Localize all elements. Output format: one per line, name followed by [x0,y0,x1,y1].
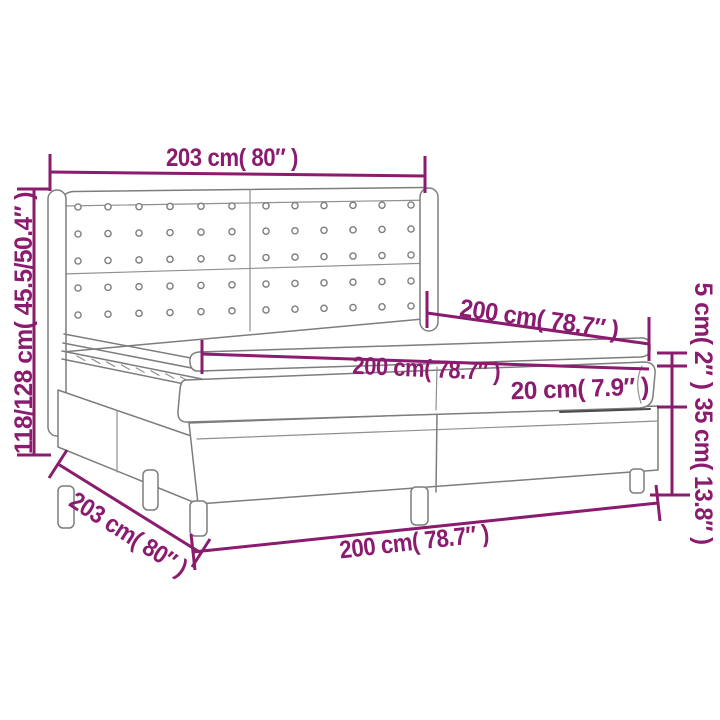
dim-base-width-front-tick-left [191,534,195,570]
headboard-button [408,252,414,258]
slat-hatch [92,359,100,364]
headboard-button [292,203,298,209]
headboard-button [229,229,235,235]
side-rail-line-3 [62,351,202,379]
headboard-button [229,282,235,288]
headboard-button [105,311,111,317]
headboard-button [321,280,327,286]
headboard-button [167,256,173,262]
headboard-button [229,255,235,261]
headboard-button [263,281,269,287]
headboard-button [75,258,81,264]
headboard-button [75,312,81,318]
headboard-button [321,305,327,311]
headboard-button [136,204,142,210]
slat-hatch [121,365,129,370]
slat-hatch-marks [77,356,189,381]
box-center-seam [436,413,437,492]
headboard-button [321,253,327,259]
headboard-right-wing [420,188,438,331]
headboard-button [198,229,204,235]
headboard-button [198,203,204,209]
headboard-button [350,227,356,233]
headboard-button [408,278,414,284]
headboard-button [408,202,414,208]
headboard-button [136,230,142,236]
headboard-button [75,231,81,237]
headboard-button [408,303,414,309]
dim-mattress-height: 20 cm( 7.9″ ) [510,373,649,406]
headboard-button [321,202,327,208]
headboard-button [379,226,385,232]
headboard-button [350,279,356,285]
headboard-face [62,187,434,352]
headboard-button [350,202,356,208]
headboard-button [292,306,298,312]
headboard-button [167,283,173,289]
headboard-button [75,285,81,291]
headboard-button [105,284,111,290]
headboard-button [167,230,173,236]
dim-base-width-front-label: 200 cm( 78.7″ ) [338,520,490,565]
dim-base-width-front-tick-right [656,485,660,521]
headboard-button [263,307,269,313]
slat-hatch [77,356,85,361]
product-dimension-diagram: 203 cm( 80″ ) 118/128 cm( 45.5/50.4″ ) 2… [0,0,720,720]
dim-right-stack: 5 cm( 2″ ) 35 cm( 13.8″ ) [650,283,717,545]
headboard-button [263,203,269,209]
headboard-button [198,256,204,262]
headboard-button [229,203,235,209]
slat-hatch [136,368,144,373]
headboard-button [136,310,142,316]
headboard-button [263,228,269,234]
dim-total-height-label: 118/128 cm( 45.5/50.4″ ) [10,192,38,454]
headboard-button [379,202,385,208]
headboard-button [198,309,204,315]
headboard-button [292,254,298,260]
headboard-button [292,280,298,286]
dim-base-width-side-tick-left [49,450,67,478]
headboard-button [105,204,111,210]
leg-mid-left [143,470,158,510]
dim-headboard-width: 203 cm( 80″ ) [50,144,425,193]
headboard-button [198,282,204,288]
slat-hatch [151,371,159,376]
headboard-button [321,227,327,233]
leg-front-middle [411,487,428,525]
headboard-button [75,204,81,210]
headboard-button [229,308,235,314]
dim-base-height-label: 35 cm( 13.8″ ) [689,398,717,545]
headboard-button [167,309,173,315]
dim-bed-depth-label: 200 cm( 78.7″ ) [458,294,621,344]
headboard-button [136,257,142,263]
headboard-button [105,257,111,263]
bed-diagram-canvas: 203 cm( 80″ ) 118/128 cm( 45.5/50.4″ ) 2… [0,0,720,720]
headboard-button [350,253,356,259]
dim-total-height: 118/128 cm( 45.5/50.4″ ) [10,189,51,455]
dim-headboard-width-line [50,172,425,176]
dim-headboard-width-label: 203 cm( 80″ ) [166,144,298,172]
dim-mattress-height-label: 20 cm( 7.9″ ) [510,373,649,406]
side-rail-line-4 [62,359,199,387]
headboard-button [350,304,356,310]
headboard-button [408,226,414,232]
leg-front-right [630,469,644,493]
headboard-button [167,203,173,209]
headboard-button [105,230,111,236]
headboard-button [379,279,385,285]
headboard-button [136,284,142,290]
headboard-button [292,228,298,234]
headboard-button [263,255,269,261]
dim-topper-height-label: 5 cm( 2″ ) [689,283,717,390]
headboard-button [379,252,385,258]
headboard-button [379,304,385,310]
slat-hatch [107,362,115,367]
slat-hatch [166,374,174,379]
leg-front-left [190,501,207,536]
